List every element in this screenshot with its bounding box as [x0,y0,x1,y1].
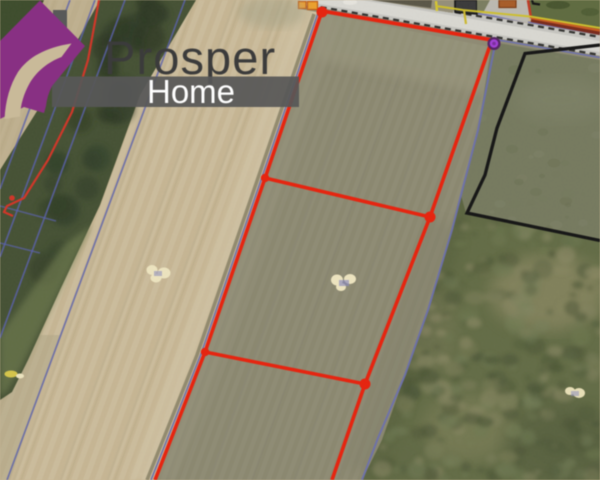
svg-text:Home: Home [147,73,235,110]
